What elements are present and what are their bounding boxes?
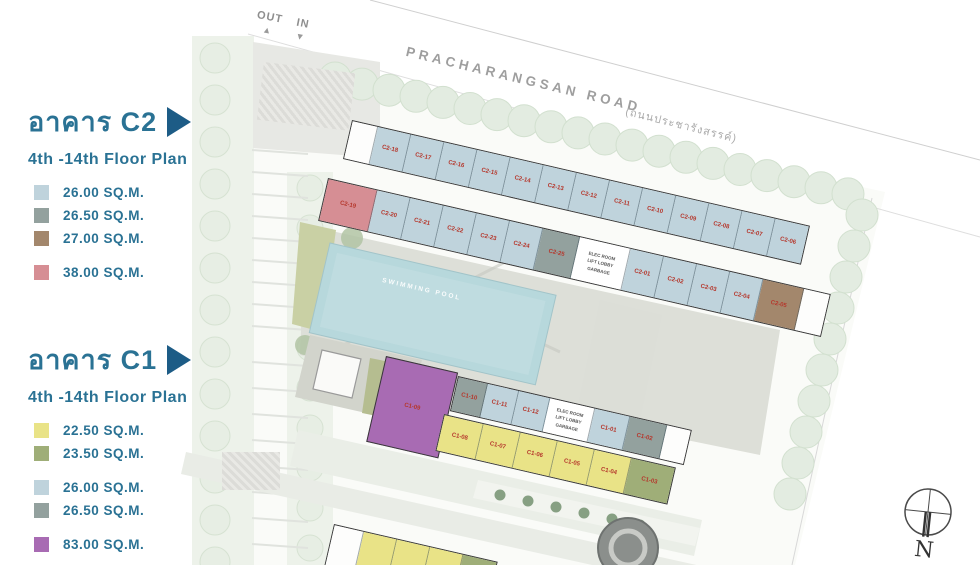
unit-label: C1-11 xyxy=(491,399,508,408)
unit-label: C2-01 xyxy=(634,268,651,278)
unit-label: C2-07 xyxy=(746,229,763,239)
unit-label: C1-01 xyxy=(600,424,617,434)
unit-label: C1-12 xyxy=(522,406,539,416)
unit-label: C1-09 xyxy=(404,402,421,412)
unit-label: C1-02 xyxy=(636,433,653,443)
legend-label: 83.00 SQ.M. xyxy=(63,537,144,552)
legend-label: 27.00 SQ.M. xyxy=(63,231,144,246)
c1-legend-items: 22.50 SQ.M.23.50 SQ.M.26.00 SQ.M.26.50 S… xyxy=(28,419,218,556)
unit-label: C1-06 xyxy=(526,450,543,460)
legend-label: 26.50 SQ.M. xyxy=(63,503,144,518)
legend-label: 38.00 SQ.M. xyxy=(63,265,144,280)
unit-label: C2-23 xyxy=(480,233,497,243)
unit-label: C2-20 xyxy=(380,210,397,220)
unit-label: C2-22 xyxy=(446,225,463,235)
legend-label: 23.50 SQ.M. xyxy=(63,446,144,461)
unit-label: C2-03 xyxy=(700,284,717,294)
legend-item: 27.00 SQ.M. xyxy=(28,227,218,250)
unit-label: C2-17 xyxy=(414,152,431,162)
unit-label: C2-13 xyxy=(547,183,564,193)
legend-item: 26.50 SQ.M. xyxy=(28,499,218,522)
legend-item: 23.50 SQ.M. xyxy=(28,442,218,465)
legend-gap xyxy=(28,522,218,533)
unit-label: C2-05 xyxy=(770,300,787,310)
legend-swatch-blue xyxy=(34,185,49,200)
unit-label: C2-21 xyxy=(413,218,430,228)
legend-c1: อาคาร C1 4th -14th Floor Plan 22.50 SQ.M… xyxy=(28,338,218,556)
legend-swatch-pink xyxy=(34,265,49,280)
legend-item: 38.00 SQ.M. xyxy=(28,261,218,284)
unit-label: C2-11 xyxy=(613,198,630,207)
legend-swatch-purple xyxy=(34,537,49,552)
out-arrow-icon: ▲ xyxy=(262,25,273,36)
site-plan: N PRACHARANGSAN ROAD (ถนนประชารังสรรค์) … xyxy=(0,0,980,565)
driveway-hatch xyxy=(257,62,355,131)
unit-label: C2-18 xyxy=(381,145,398,155)
unit-label: C2-24 xyxy=(513,240,530,250)
legend-label: 26.00 SQ.M. xyxy=(63,480,144,495)
compass-icon: N xyxy=(900,487,953,565)
unit-label: C2-02 xyxy=(667,276,684,286)
unit-label: C2-14 xyxy=(514,175,531,185)
unit-label: C2-12 xyxy=(580,190,597,200)
unit-label: C2-06 xyxy=(779,236,796,246)
legend-gap xyxy=(28,250,218,261)
unit-label: C1-07 xyxy=(489,441,506,451)
unit-label: C2-10 xyxy=(646,206,663,216)
c2-legend-items: 26.00 SQ.M.26.50 SQ.M.27.00 SQ.M.38.00 S… xyxy=(28,181,218,284)
legend-label: 26.50 SQ.M. xyxy=(63,208,144,223)
in-label: IN xyxy=(295,18,310,31)
unit-label: C1-08 xyxy=(451,432,468,442)
legend-swatch-olive xyxy=(34,446,49,461)
c2-floor-range: 4th -14th Floor Plan xyxy=(28,151,218,169)
legend-swatch-blue xyxy=(34,480,49,495)
crosswalk-hatch xyxy=(222,452,280,490)
arrow-right-icon xyxy=(167,345,191,375)
c1-floor-range: 4th -14th Floor Plan xyxy=(28,389,218,407)
in-arrow-icon: ▼ xyxy=(295,32,306,43)
unit-label: C2-04 xyxy=(733,291,750,301)
unit-label: C2-08 xyxy=(713,221,730,231)
building-c2-title: อาคาร C2 xyxy=(28,100,157,143)
unit-label: C2-19 xyxy=(339,200,356,210)
building-c1-title: อาคาร C1 xyxy=(28,338,157,381)
legend-item: 26.50 SQ.M. xyxy=(28,204,218,227)
legend-item: 83.00 SQ.M. xyxy=(28,533,218,556)
unit-label: C2-09 xyxy=(679,213,696,223)
legend-item: 26.00 SQ.M. xyxy=(28,181,218,204)
legend-label: 26.00 SQ.M. xyxy=(63,185,144,200)
compass-label: N xyxy=(913,537,935,564)
legend-item: 26.00 SQ.M. xyxy=(28,476,218,499)
unit-label: C1-04 xyxy=(600,467,617,477)
arrow-right-icon xyxy=(167,107,191,137)
unit-label: C2-25 xyxy=(548,249,565,259)
unit-label: C2-16 xyxy=(448,160,465,170)
legend-swatch-gray xyxy=(34,208,49,223)
unit-label: C1-10 xyxy=(460,392,477,402)
legend-gap xyxy=(28,465,218,476)
unit-label: C1-05 xyxy=(563,458,580,468)
legend-swatch-gray xyxy=(34,503,49,518)
out-label: OUT xyxy=(256,10,284,26)
unit-C2-06: C2-06 xyxy=(767,219,809,264)
unit-label: C1-03 xyxy=(641,476,658,486)
legend-swatch-yellow xyxy=(34,423,49,438)
legend-swatch-brown xyxy=(34,231,49,246)
unit-label: C2-15 xyxy=(481,167,498,177)
legend-label: 22.50 SQ.M. xyxy=(63,423,144,438)
legend-c2: อาคาร C2 4th -14th Floor Plan 26.00 SQ.M… xyxy=(28,100,218,284)
legend-item: 22.50 SQ.M. xyxy=(28,419,218,442)
